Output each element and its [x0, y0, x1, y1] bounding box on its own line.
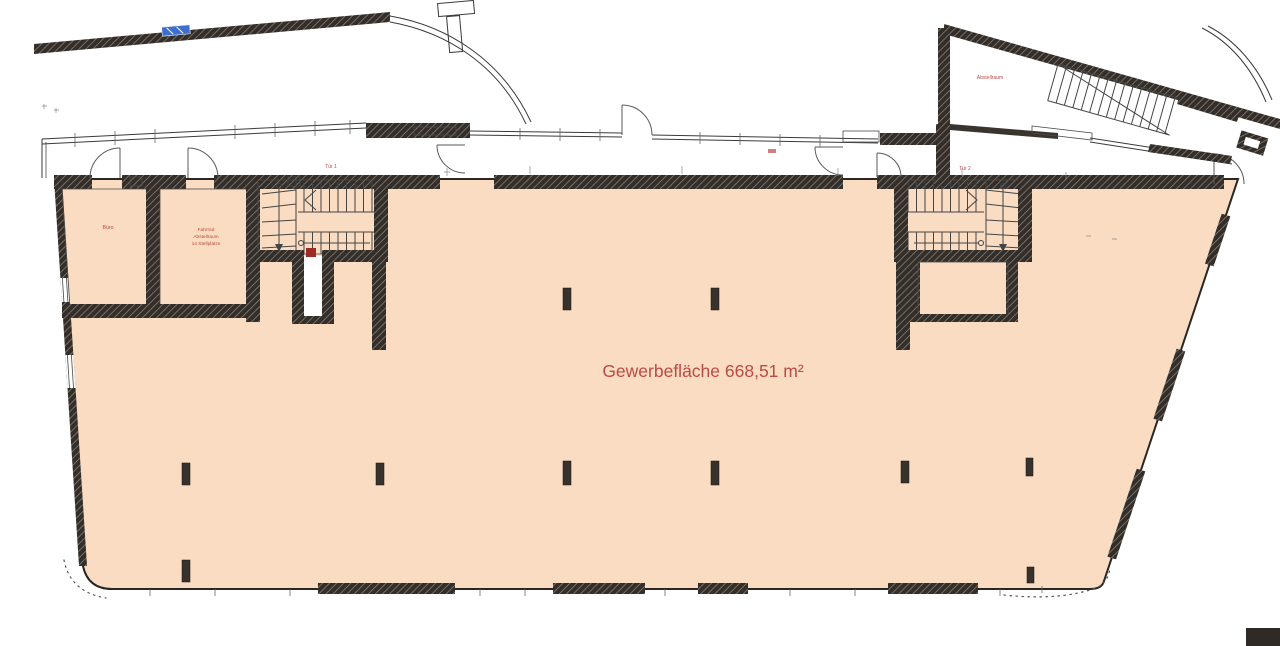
door-swing [188, 148, 218, 178]
bike-room-label-line2: Abstellraum [193, 234, 218, 240]
column [182, 463, 190, 485]
wall-segment [292, 316, 334, 324]
column [376, 463, 384, 485]
office-room-label: Büro [103, 225, 114, 231]
door2-label: Tür 2 [959, 166, 971, 172]
wall-segment [553, 583, 645, 594]
floorplan-drawing: Gewerbefläche 668,51 m² Büro Fahrrad Abs… [0, 0, 1280, 646]
window-mullions [75, 120, 350, 147]
column [563, 288, 571, 310]
wall-segment [877, 175, 1224, 189]
wall-segment [698, 583, 748, 594]
wall-segment [910, 314, 1018, 322]
door-swing [815, 147, 843, 175]
door-swing [437, 145, 465, 173]
sheet-crop-block [1246, 628, 1280, 646]
commercial-area [58, 179, 1238, 589]
floorplan-page: Gewerbefläche 668,51 m² Büro Fahrrad Abs… [0, 0, 1280, 646]
wall-segment [372, 258, 386, 350]
wall-segment [896, 258, 910, 350]
wall-segment [374, 178, 388, 262]
wall-segment [62, 304, 258, 318]
shaft [304, 256, 322, 318]
wall-segment [910, 256, 920, 322]
window-opening [843, 131, 879, 142]
wall-segment [146, 186, 160, 312]
north-wall [54, 175, 1224, 189]
bike-room-label-line1: Fahrrad [198, 227, 215, 233]
wall-end-block [1236, 130, 1268, 155]
wall-segment [258, 250, 292, 262]
wall-segment [950, 124, 1058, 139]
column [563, 461, 571, 485]
upper-site-wall [34, 12, 390, 113]
wall-segment [318, 583, 455, 594]
red-note-mark [768, 149, 776, 153]
fire-door-marker [306, 248, 316, 257]
door-swing [877, 153, 901, 177]
wall-segment [1018, 178, 1032, 262]
wall-segment [888, 583, 978, 594]
column [711, 288, 719, 310]
wall-segment [880, 133, 940, 145]
column [711, 461, 719, 485]
wall-segment [322, 250, 334, 322]
wall-segment [366, 123, 470, 138]
wall-segment [494, 175, 843, 189]
commercial-area-label: Gewerbefläche 668,51 m² [602, 361, 804, 381]
wall-segment [34, 12, 390, 54]
roof-bay [438, 0, 475, 16]
storage-wing [938, 24, 1280, 164]
door-swings [90, 105, 1244, 184]
bike-room-label-line3: 14 Stellplätze [192, 241, 221, 247]
wall-segment [936, 124, 950, 186]
column [182, 560, 190, 582]
curved-boundary [390, 0, 531, 124]
wall-segment [938, 28, 950, 130]
wall-segment [292, 250, 304, 322]
commercial-area-floor [58, 179, 1238, 589]
door-swing [90, 148, 120, 178]
column [1027, 567, 1034, 583]
door-swing [622, 105, 652, 135]
column [1026, 458, 1033, 476]
door1-label: Tür 1 [325, 164, 337, 170]
wall-segment [894, 178, 908, 262]
storage-room-label: Abstellraum [977, 75, 1003, 81]
column [901, 461, 909, 483]
